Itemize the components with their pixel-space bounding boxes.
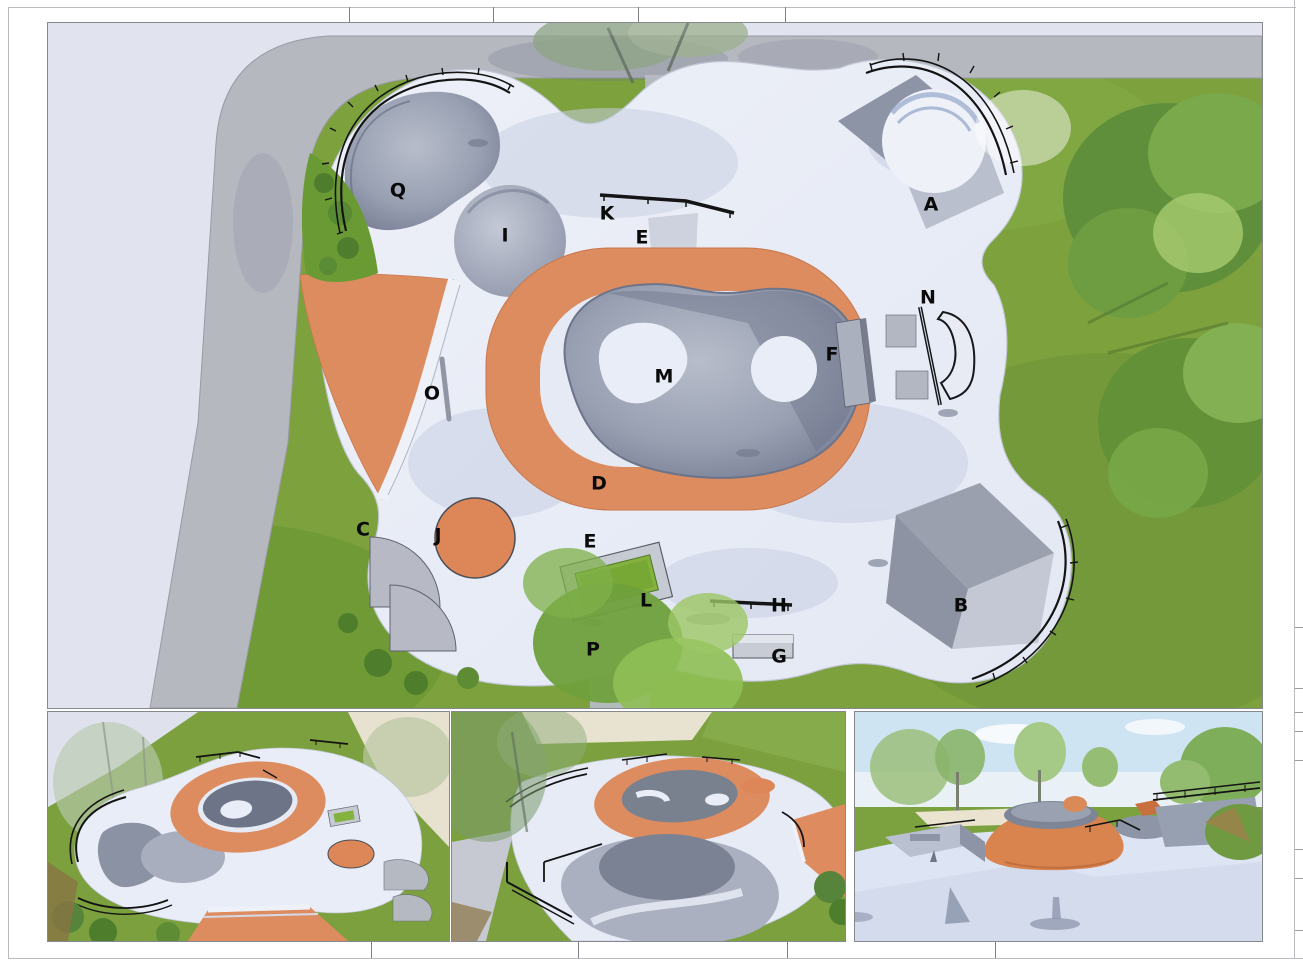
fold-mark: [787, 941, 788, 958]
fold-mark: [638, 7, 639, 23]
fold-mark: [349, 7, 350, 23]
margin-tick: [1295, 878, 1303, 879]
margin-tick: [1295, 712, 1303, 713]
bowl-m: [564, 284, 861, 478]
fold-mark: [785, 7, 786, 23]
margin-tick: [1295, 930, 1303, 931]
margin-tick: [1295, 760, 1303, 761]
margin-tick: [1295, 849, 1303, 850]
fold-mark: [578, 941, 579, 958]
margin-tick: [1295, 731, 1303, 732]
drawing-sheet: QIKEANFMODCJELPHBG: [0, 0, 1303, 966]
plan-view-render: QIKEANFMODCJELPHBG: [48, 23, 1262, 708]
frame-top: [8, 7, 1296, 8]
fold-mark: [493, 7, 494, 23]
frame-right: [1294, 0, 1295, 958]
margin-tick: [1295, 688, 1303, 689]
fold-mark: [995, 941, 996, 958]
frame-bottom: [8, 958, 1303, 959]
perspective-view-3: [855, 712, 1262, 941]
perspective-view-2: [452, 712, 845, 941]
perspective-view-1: [48, 712, 449, 941]
orange-circle-j: [435, 498, 515, 578]
plan-svg: [48, 23, 1262, 708]
frame-left: [8, 7, 9, 958]
margin-tick: [1295, 627, 1303, 628]
fold-mark: [371, 941, 372, 958]
